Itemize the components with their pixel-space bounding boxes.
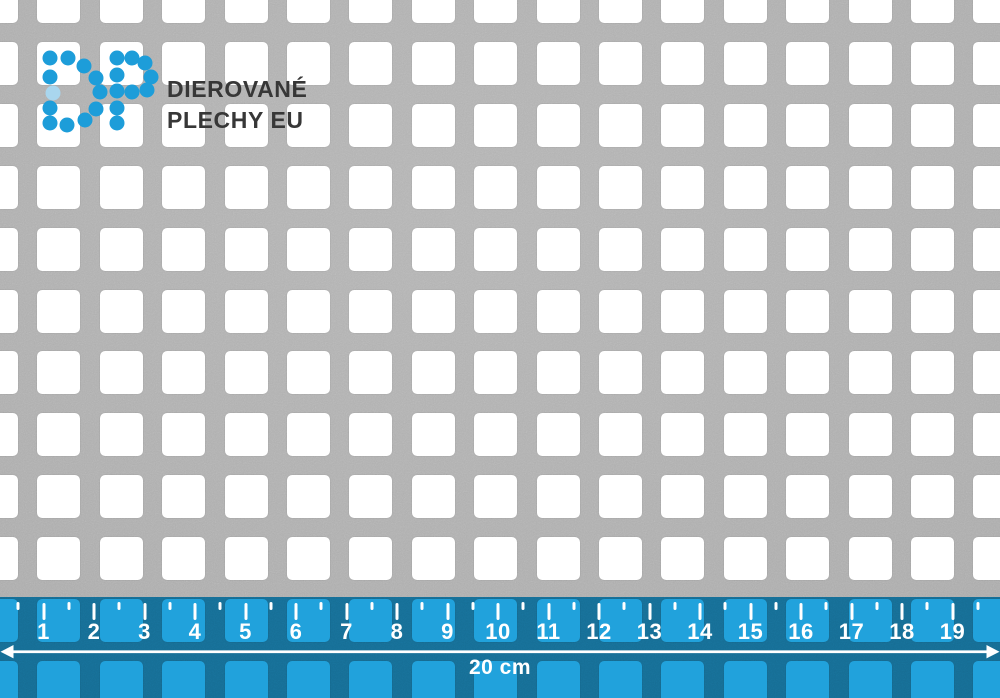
perforation-hole — [599, 537, 642, 580]
perforation-hole — [599, 0, 642, 23]
logo-dot — [61, 51, 76, 66]
perforation-hole — [474, 228, 517, 271]
perforation-hole — [973, 42, 1000, 85]
perforation-hole — [661, 351, 704, 394]
perforation-hole — [37, 537, 80, 580]
perforation-hole — [37, 228, 80, 271]
perforation-hole — [724, 166, 767, 209]
perforation-hole — [225, 413, 268, 456]
ruler-total-label: 20 cm — [0, 656, 1000, 680]
perforation-hole — [849, 104, 892, 147]
perforation-hole — [661, 0, 704, 23]
perforation-hole — [724, 475, 767, 518]
double-arrow-line — [0, 597, 1000, 698]
perforation-hole — [100, 166, 143, 209]
perforation-hole — [724, 537, 767, 580]
perforation-hole — [661, 537, 704, 580]
logo-dot — [89, 71, 104, 86]
perforation-hole — [225, 351, 268, 394]
perforation-hole — [849, 413, 892, 456]
perforation-hole — [349, 42, 392, 85]
perforation-hole — [849, 351, 892, 394]
perforation-hole — [474, 537, 517, 580]
perforation-hole — [412, 104, 455, 147]
perforation-hole — [287, 228, 330, 271]
perforation-hole — [287, 351, 330, 394]
perforation-hole — [0, 166, 18, 209]
perforation-hole — [973, 537, 1000, 580]
perforation-hole — [349, 166, 392, 209]
perforation-hole — [786, 228, 829, 271]
perforation-hole — [537, 537, 580, 580]
perforation-hole — [412, 351, 455, 394]
perforation-hole — [786, 537, 829, 580]
perforation-hole — [599, 166, 642, 209]
perforation-hole — [911, 351, 954, 394]
logo-dot — [125, 51, 140, 66]
perforation-hole — [849, 290, 892, 333]
perforation-hole — [100, 475, 143, 518]
logo-dot — [43, 116, 58, 131]
perforation-hole — [225, 228, 268, 271]
perforation-hole — [100, 351, 143, 394]
perforation-hole — [911, 0, 954, 23]
logo-dot — [43, 101, 58, 116]
perforation-hole — [724, 413, 767, 456]
perforation-hole — [162, 228, 205, 271]
perforation-hole — [911, 537, 954, 580]
perforation-hole — [225, 475, 268, 518]
perforation-hole — [287, 475, 330, 518]
perforation-hole — [37, 290, 80, 333]
perforation-hole — [537, 413, 580, 456]
perforation-hole — [911, 475, 954, 518]
perforation-hole — [537, 42, 580, 85]
logo-dot — [144, 70, 159, 85]
perforation-hole — [786, 104, 829, 147]
perforation-hole — [599, 413, 642, 456]
perforation-hole — [973, 104, 1000, 147]
perforation-hole — [474, 166, 517, 209]
perforation-hole — [849, 537, 892, 580]
perforation-hole — [412, 290, 455, 333]
perforation-hole — [973, 166, 1000, 209]
brand-name-line1: DIEROVANÉ — [167, 74, 307, 105]
perforation-hole — [599, 104, 642, 147]
perforation-hole — [537, 166, 580, 209]
perforation-hole — [911, 413, 954, 456]
perforation-hole — [0, 537, 18, 580]
perforation-hole — [225, 537, 268, 580]
perforation-hole — [537, 290, 580, 333]
perforation-hole — [849, 166, 892, 209]
perforation-hole — [973, 290, 1000, 333]
perforation-hole — [849, 42, 892, 85]
logo-dot — [43, 51, 58, 66]
perforation-hole — [287, 166, 330, 209]
perforation-hole — [724, 290, 767, 333]
perforation-hole — [599, 290, 642, 333]
perforation-hole — [412, 0, 455, 23]
logo-dot — [110, 101, 125, 116]
perforation-hole — [724, 0, 767, 23]
perforation-hole — [537, 351, 580, 394]
perforation-hole — [537, 228, 580, 271]
perforation-hole — [537, 0, 580, 23]
perforation-hole — [162, 351, 205, 394]
perforation-hole — [412, 413, 455, 456]
perforation-hole — [474, 0, 517, 23]
perforation-hole — [911, 290, 954, 333]
perforation-hole — [661, 228, 704, 271]
perforation-hole — [537, 104, 580, 147]
perforation-hole — [849, 228, 892, 271]
perforation-hole — [349, 0, 392, 23]
logo-dot — [77, 59, 92, 74]
perforation-hole — [100, 537, 143, 580]
perforation-hole — [724, 42, 767, 85]
perforation-hole — [786, 351, 829, 394]
perforation-hole — [661, 413, 704, 456]
perforation-hole — [287, 413, 330, 456]
perforation-hole — [661, 104, 704, 147]
perforation-hole — [724, 351, 767, 394]
perforation-hole — [849, 475, 892, 518]
perforation-hole — [599, 42, 642, 85]
perforation-hole — [661, 475, 704, 518]
perforation-hole — [911, 104, 954, 147]
logo-dot — [110, 68, 125, 83]
perforation-hole — [911, 166, 954, 209]
perforation-hole — [537, 475, 580, 518]
perforation-hole — [661, 42, 704, 85]
perforation-hole — [973, 351, 1000, 394]
perforation-hole — [412, 42, 455, 85]
perforation-hole — [162, 290, 205, 333]
perforation-hole — [724, 228, 767, 271]
perforation-hole — [412, 228, 455, 271]
perforation-hole — [162, 166, 205, 209]
perforation-hole — [786, 166, 829, 209]
perforation-hole — [599, 351, 642, 394]
perforation-hole — [37, 166, 80, 209]
logo-dot — [46, 86, 61, 101]
perforation-hole — [100, 228, 143, 271]
perforation-hole — [724, 104, 767, 147]
logo-dot — [140, 83, 155, 98]
perforation-hole — [412, 537, 455, 580]
perforated-sheet-product-photo: 12345678910111213141516171819 20 cm DIER… — [0, 0, 1000, 698]
perforation-hole — [786, 413, 829, 456]
perforation-hole — [287, 290, 330, 333]
perforation-hole — [100, 290, 143, 333]
brand-name: DIEROVANÉ PLECHY EU — [167, 74, 307, 136]
perforation-hole — [162, 413, 205, 456]
perforation-hole — [412, 475, 455, 518]
perforation-hole — [37, 413, 80, 456]
perforation-hole — [973, 228, 1000, 271]
perforation-hole — [973, 413, 1000, 456]
logo-dot — [110, 116, 125, 131]
logo-dot — [60, 118, 75, 133]
perforation-hole — [287, 537, 330, 580]
perforation-hole — [100, 413, 143, 456]
dp-dots-logo-icon — [0, 0, 170, 145]
perforation-hole — [474, 42, 517, 85]
logo-dot — [89, 102, 104, 117]
logo-dot — [78, 113, 93, 128]
perforation-hole — [474, 290, 517, 333]
perforation-hole — [349, 104, 392, 147]
perforation-hole — [661, 290, 704, 333]
perforation-hole — [162, 475, 205, 518]
perforation-hole — [349, 413, 392, 456]
perforation-hole — [474, 475, 517, 518]
perforation-hole — [786, 0, 829, 23]
perforation-hole — [0, 228, 18, 271]
perforation-hole — [911, 42, 954, 85]
perforation-hole — [0, 475, 18, 518]
perforation-hole — [225, 290, 268, 333]
logo-dot — [110, 51, 125, 66]
perforation-hole — [0, 290, 18, 333]
logo-dot — [138, 56, 153, 71]
perforation-hole — [349, 351, 392, 394]
perforation-hole — [412, 166, 455, 209]
perforation-hole — [37, 475, 80, 518]
perforation-hole — [349, 290, 392, 333]
perforation-hole — [911, 228, 954, 271]
perforation-hole — [349, 475, 392, 518]
logo-dot — [125, 85, 140, 100]
perforation-hole — [349, 537, 392, 580]
logo-dot — [110, 84, 125, 99]
perforation-hole — [474, 104, 517, 147]
perforation-hole — [599, 475, 642, 518]
brand-name-line2: PLECHY EU — [167, 105, 307, 136]
perforation-hole — [0, 351, 18, 394]
ruler: 12345678910111213141516171819 20 cm — [0, 597, 1000, 698]
perforation-hole — [225, 166, 268, 209]
perforation-hole — [849, 0, 892, 23]
perforation-hole — [0, 413, 18, 456]
logo-dot — [93, 85, 108, 100]
perforation-hole — [786, 475, 829, 518]
perforation-hole — [349, 228, 392, 271]
perforation-hole — [786, 290, 829, 333]
perforation-hole — [162, 537, 205, 580]
brand-logo: DIEROVANÉ PLECHY EU — [0, 0, 330, 150]
arrow-line — [9, 650, 991, 653]
perforation-hole — [973, 475, 1000, 518]
perforation-hole — [37, 351, 80, 394]
perforation-hole — [474, 351, 517, 394]
perforation-hole — [474, 413, 517, 456]
perforation-hole — [786, 42, 829, 85]
logo-dot — [43, 70, 58, 85]
perforation-hole — [973, 0, 1000, 23]
perforation-hole — [661, 166, 704, 209]
perforation-hole — [599, 228, 642, 271]
